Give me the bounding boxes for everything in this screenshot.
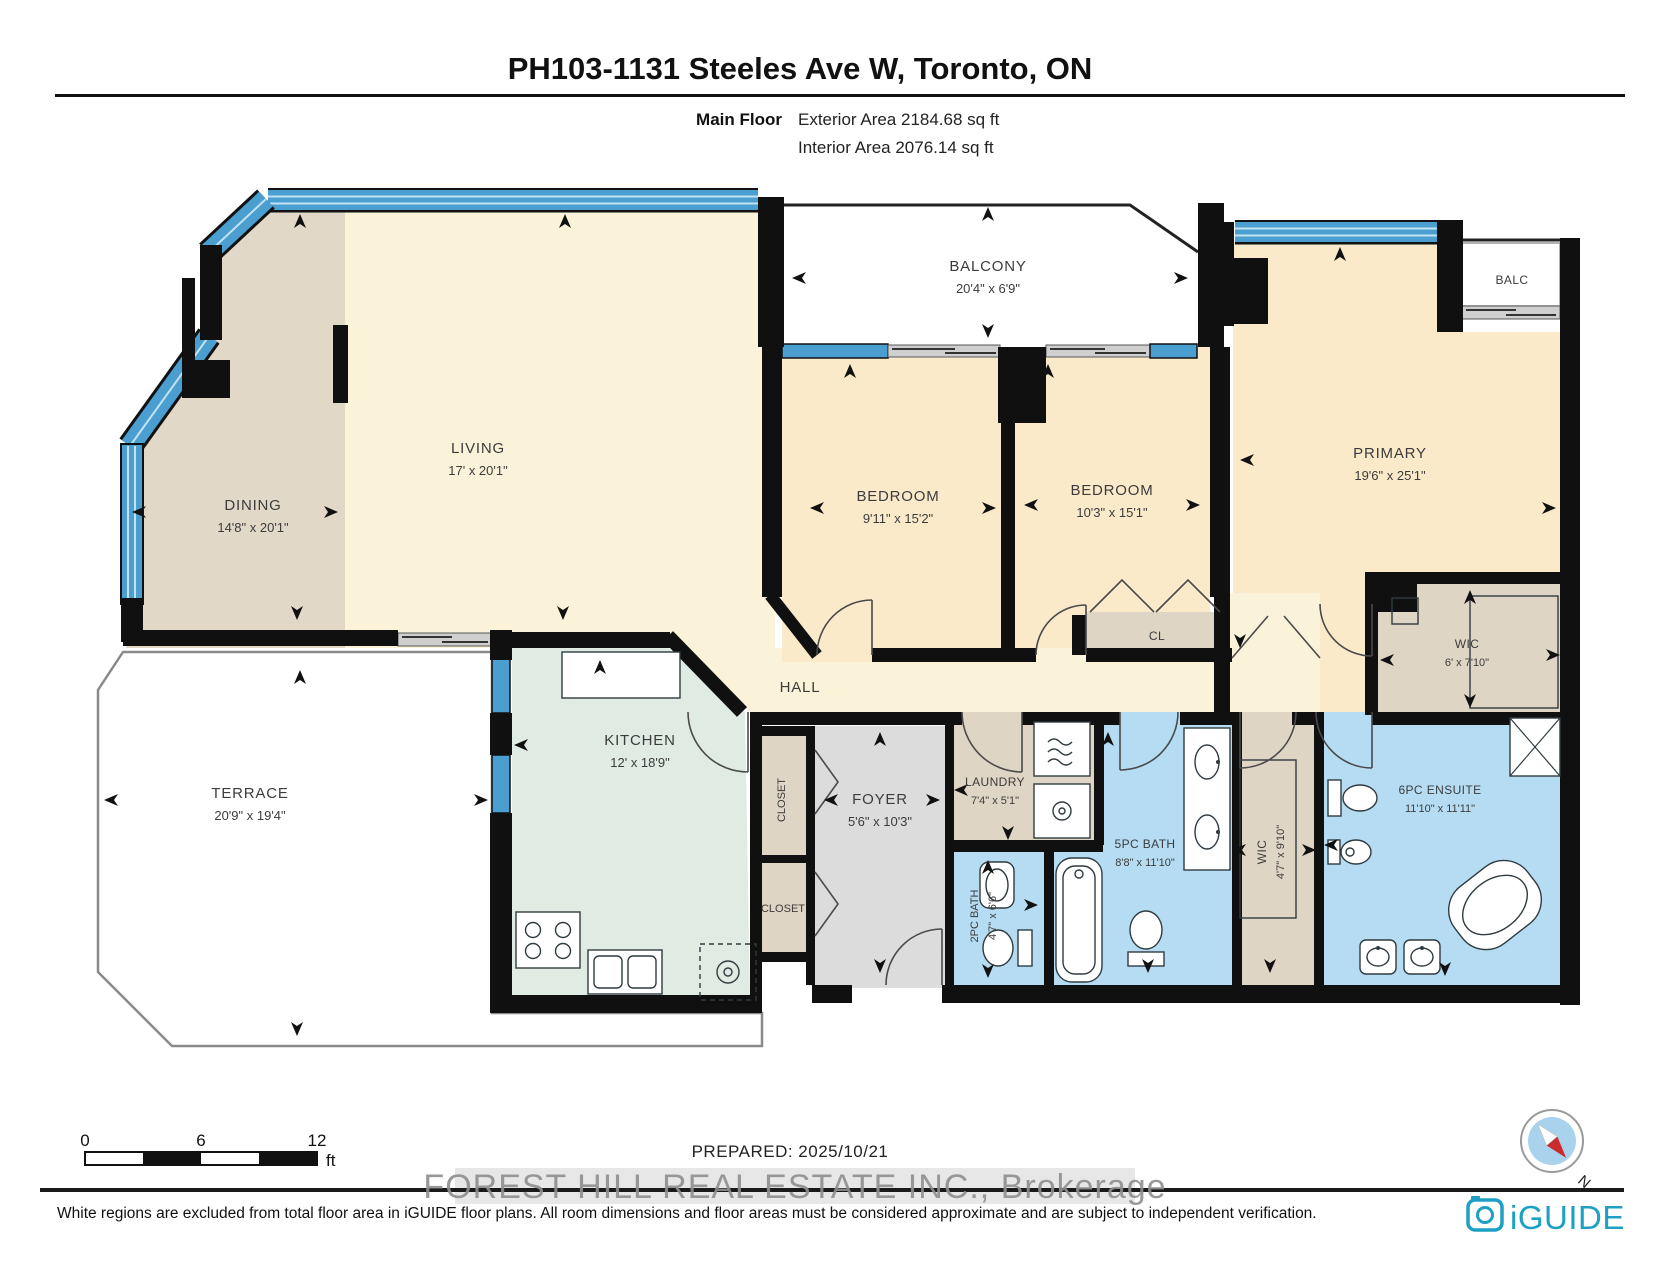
label-dining: DINING — [224, 497, 281, 514]
footer: 0 6 12 ft PREPARED: 2025/10/21 FOREST HI… — [40, 1110, 1625, 1236]
svg-text:6' x 7'10": 6' x 7'10" — [1445, 657, 1489, 669]
sink-ensuite-2 — [1404, 940, 1440, 974]
disclaimer: White regions are excluded from total fl… — [57, 1205, 1317, 1222]
svg-text:19'6" x 25'1": 19'6" x 25'1" — [1354, 468, 1426, 483]
toilet-ensuite — [1328, 780, 1341, 816]
svg-text:10'3" x 15'1": 10'3" x 15'1" — [1076, 505, 1148, 520]
label-wic-primary: WIC — [1455, 637, 1480, 651]
floorplan-page: PH103-1131 Steeles Ave W, Toronto, ON Ma… — [0, 0, 1680, 1280]
svg-text:6: 6 — [196, 1131, 205, 1150]
label-cl: CL — [1149, 629, 1165, 643]
toilet-5pc — [1130, 911, 1162, 949]
label-bedroom2: BEDROOM — [1070, 482, 1153, 499]
svg-text:12: 12 — [308, 1131, 327, 1150]
svg-text:4'7" x 6'6": 4'7" x 6'6" — [987, 892, 999, 940]
brokerage-watermark: FOREST HILL REAL ESTATE INC., Brokerage — [423, 1168, 1166, 1206]
camera-icon — [1468, 1200, 1502, 1230]
label-wic-hall: WIC — [1255, 840, 1269, 865]
room-living — [345, 200, 775, 648]
svg-text:7'4" x 5'1": 7'4" x 5'1" — [971, 795, 1019, 807]
label-foyer: FOYER — [852, 791, 908, 808]
scale-bar: 0 6 12 ft — [80, 1131, 335, 1170]
exterior-area: Exterior Area 2184.68 sq ft — [798, 110, 1000, 129]
svg-text:20'9" x 19'4": 20'9" x 19'4" — [214, 808, 286, 823]
label-bedroom1: BEDROOM — [856, 488, 939, 505]
svg-text:12' x 18'9": 12' x 18'9" — [610, 755, 670, 770]
label-hall: HALL — [780, 679, 821, 696]
label-closet-upper: CLOSET — [776, 778, 788, 822]
svg-text:5'6" x 10'3": 5'6" x 10'3" — [848, 814, 912, 829]
page-title: PH103-1131 Steeles Ave W, Toronto, ON — [508, 51, 1093, 86]
scale-unit: ft — [326, 1151, 336, 1170]
room-foyer — [812, 726, 948, 988]
label-balcony: BALCONY — [949, 258, 1026, 275]
room-closets — [755, 726, 812, 958]
label-ensuite: 6PC ENSUITE — [1398, 783, 1481, 797]
sink-ensuite-1 — [1360, 940, 1396, 974]
floor-label: Main Floor — [696, 110, 782, 129]
room-fills — [98, 200, 1562, 1046]
svg-text:9'11" x 15'2": 9'11" x 15'2" — [863, 511, 934, 526]
header: PH103-1131 Steeles Ave W, Toronto, ON Ma… — [55, 51, 1625, 157]
label-laundry: LAUNDRY — [965, 775, 1025, 789]
brand-name: iGUIDE — [1510, 1199, 1625, 1236]
svg-text:4'7" x 9'10": 4'7" x 9'10" — [1275, 825, 1287, 879]
kitchen-island — [562, 652, 680, 698]
label-terrace: TERRACE — [211, 785, 288, 802]
iguide-logo: iGUIDE — [1468, 1196, 1625, 1236]
header-divider — [55, 94, 1625, 97]
suite-corridor — [1228, 593, 1320, 712]
svg-text:0: 0 — [80, 1131, 89, 1150]
label-balc: BALC — [1496, 273, 1529, 287]
label-kitchen: KITCHEN — [604, 732, 675, 749]
svg-text:17' x 20'1": 17' x 20'1" — [448, 463, 508, 478]
svg-text:8'8" x 11'10": 8'8" x 11'10" — [1115, 857, 1175, 869]
dryer — [1034, 722, 1090, 776]
svg-text:14'8" x 20'1": 14'8" x 20'1" — [217, 520, 289, 535]
stove — [516, 912, 580, 968]
compass-icon: N — [1521, 1110, 1594, 1192]
washer — [1034, 784, 1090, 838]
floorplan-canvas: PH103-1131 Steeles Ave W, Toronto, ON Ma… — [0, 0, 1680, 1280]
prepared-date: PREPARED: 2025/10/21 — [692, 1142, 889, 1161]
label-living: LIVING — [451, 440, 505, 457]
interior-area: Interior Area 2076.14 sq ft — [798, 138, 994, 157]
label-primary: PRIMARY — [1353, 445, 1427, 462]
svg-text:11'10" x 11'11": 11'10" x 11'11" — [1405, 803, 1475, 815]
svg-text:20'4" x 6'9": 20'4" x 6'9" — [956, 281, 1020, 296]
room-balcony — [782, 205, 1197, 345]
label-2pc-bath: 2PC BATH — [969, 889, 981, 942]
label-5pc-bath: 5PC BATH — [1115, 837, 1176, 851]
label-closet-lower: CLOSET — [761, 903, 805, 915]
